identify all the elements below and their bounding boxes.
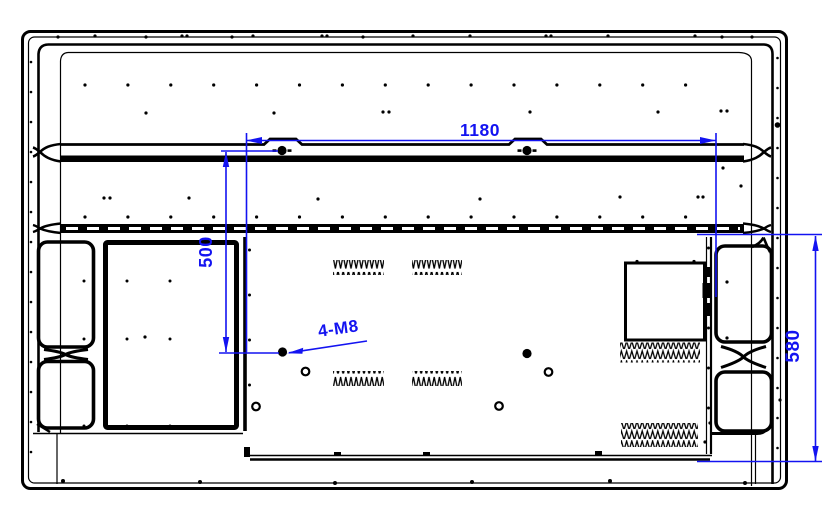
vent-grille — [412, 371, 462, 386]
callout-4-m8-label: 4-M8 — [317, 316, 360, 340]
display-rear-view-drawing: 1180 500 580 4-M8 — [0, 0, 840, 520]
back-shell — [33, 45, 773, 487]
dimension-mount-width-label: 1180 — [460, 120, 500, 140]
upper-mount-band — [33, 139, 771, 162]
dimension-plate-height-label: 580 — [783, 329, 804, 362]
outer-frame — [23, 32, 787, 489]
screw-dots — [31, 34, 782, 485]
right-speaker-column — [712, 238, 772, 434]
small-holes — [252, 368, 552, 411]
drawing-canvas: 1180 500 580 4-M8 — [0, 0, 840, 520]
vent-grille — [412, 260, 462, 275]
dashed-band — [33, 224, 771, 234]
vent-grille — [333, 371, 384, 386]
vent-grille — [333, 260, 384, 275]
dimension-vertical-spacing-label: 500 — [196, 236, 216, 268]
vent-grille — [620, 343, 700, 363]
left-speaker-column — [39, 242, 94, 428]
module-box — [626, 260, 712, 340]
left-access-panel — [106, 243, 237, 428]
keyhole-screw-right — [518, 146, 537, 155]
callout-4-m8: 4-M8 — [287, 316, 367, 353]
vent-grille — [621, 423, 698, 447]
dimension-mount-width: 1180 — [246, 120, 716, 352]
